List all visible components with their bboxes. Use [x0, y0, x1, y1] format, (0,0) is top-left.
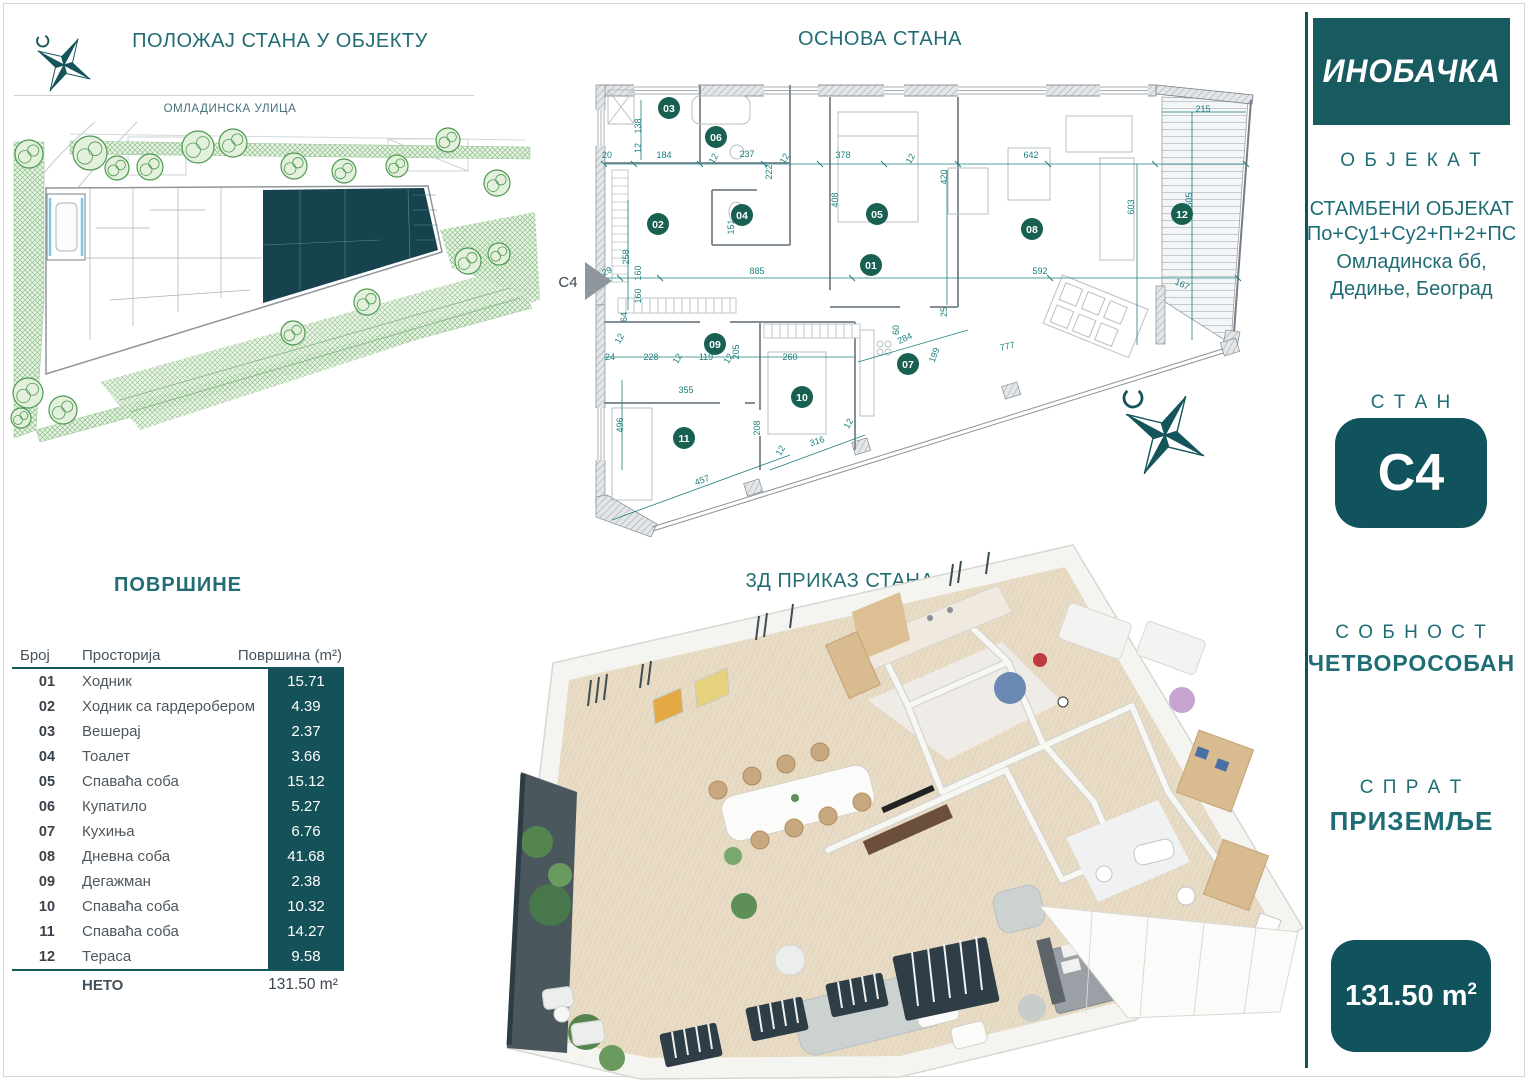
column-header-area: Површина (m²): [238, 647, 342, 664]
svg-text:228: 228: [643, 352, 658, 362]
svg-text:01: 01: [865, 260, 877, 272]
table-footer: НЕТО 131.50 m²: [12, 969, 344, 999]
unit-label: С Т А Н: [1313, 392, 1510, 414]
area-badge: 131.50 m2: [1331, 940, 1491, 1052]
address-line-2: Дедиње, Београд: [1305, 278, 1518, 301]
svg-text:592: 592: [1032, 266, 1047, 276]
table-row: 05Спаваћа соба15.12: [12, 769, 344, 794]
column-header-number: Број: [20, 647, 50, 664]
svg-text:24: 24: [605, 352, 615, 362]
svg-text:603: 603: [1126, 199, 1136, 214]
svg-text:420: 420: [939, 169, 949, 184]
brochure-page: ПОЛОЖАЈ СТАНА У ОБЈЕКТУ ОМЛАДИНСКА УЛИЦА: [0, 0, 1528, 1080]
svg-text:12: 12: [774, 444, 788, 458]
floor-plan-drawing: 1381220184122371237812642222408420603605…: [555, 55, 1275, 540]
object-label: О Б Ј Е К А Т: [1313, 150, 1510, 172]
table-header: Број Просторија Површина (m²): [12, 645, 344, 669]
svg-text:25: 25: [939, 307, 949, 317]
table-row: 06Купатило5.27: [12, 794, 344, 819]
table-row: 11Спаваћа соба14.27: [12, 919, 344, 944]
table-row: 10Спаваћа соба10.32: [12, 894, 344, 919]
svg-text:642: 642: [1023, 150, 1038, 160]
svg-text:60: 60: [891, 325, 901, 335]
site-plan-title: ПОЛОЖАЈ СТАНА У ОБЈЕКТУ: [60, 30, 500, 53]
sidebar-divider: [1305, 12, 1308, 1068]
company-logo: ИНОБАЧКА: [1313, 18, 1510, 125]
rooms-value: ЧЕТВОРОСОБАН: [1305, 650, 1518, 677]
svg-text:12: 12: [842, 417, 856, 431]
table-row: 12Тераса9.58: [12, 944, 344, 969]
net-value: 131.50 m²: [258, 976, 348, 994]
svg-text:12: 12: [613, 332, 627, 346]
object-floors: По+Су1+Су2+П+2+ПС: [1305, 223, 1518, 246]
svg-text:12: 12: [1176, 209, 1188, 221]
table-row: 08Дневна соба41.68: [12, 844, 344, 869]
company-logo-text: ИНОБАЧКА: [1322, 53, 1500, 90]
svg-text:885: 885: [749, 266, 764, 276]
divider-line: [14, 95, 474, 96]
table-row: 04Тоалет3.66: [12, 744, 344, 769]
svg-text:316: 316: [808, 434, 825, 448]
svg-text:496: 496: [615, 417, 625, 432]
areas-title: ПОВРШИНЕ: [12, 574, 344, 597]
plan-dimensions: 1381220184122371237812642222408420603605…: [600, 104, 1210, 487]
unit-badge: C4: [1335, 418, 1487, 528]
areas-section: ПОВРШИНЕ Број Просторија Површина (m²) 0…: [12, 574, 344, 999]
svg-text:05: 05: [871, 209, 883, 221]
svg-text:205: 205: [731, 344, 741, 359]
entrance-label: C4: [558, 274, 577, 291]
floor-label: С П Р А Т: [1313, 777, 1510, 799]
render-3d-image: [490, 535, 1310, 1080]
svg-text:378: 378: [835, 150, 850, 160]
svg-text:20: 20: [602, 150, 612, 160]
net-label: НЕТО: [82, 977, 258, 994]
svg-text:222: 222: [764, 164, 774, 179]
svg-text:237: 237: [739, 149, 754, 159]
svg-text:160: 160: [633, 288, 643, 303]
area-sup: 2: [1468, 979, 1477, 999]
plan-badges: 010203040506070809101112: [647, 97, 1193, 449]
svg-text:02: 02: [652, 219, 664, 231]
svg-text:11: 11: [678, 433, 689, 445]
svg-text:10: 10: [796, 392, 808, 404]
svg-text:12: 12: [671, 352, 685, 366]
site-plan-drawing: [0, 120, 545, 465]
svg-text:408: 408: [830, 192, 840, 207]
svg-text:260: 260: [782, 352, 797, 362]
table-row: 09Дегажман2.38: [12, 869, 344, 894]
sidebar: ИНОБАЧКА О Б Ј Е К А Т СТАМБЕНИ ОБЈЕКАТ …: [1305, 0, 1524, 1080]
rooms-label: С О Б Н О С Т: [1313, 622, 1510, 644]
svg-text:355: 355: [678, 385, 693, 395]
floor-plan-title: ОСНОВА СТАНА: [700, 28, 1060, 51]
plan-compass-icon: [1105, 375, 1224, 494]
svg-text:215: 215: [1195, 104, 1210, 114]
svg-text:64: 64: [619, 312, 629, 322]
column-header-room: Просторија: [82, 647, 160, 664]
svg-text:03: 03: [663, 103, 675, 115]
floor-value: ПРИЗЕМЉЕ: [1305, 806, 1518, 837]
table-row: 07Кухиња6.76: [12, 819, 344, 844]
svg-text:04: 04: [736, 210, 748, 222]
svg-text:08: 08: [1026, 224, 1038, 236]
plan-walls: [595, 84, 1253, 537]
svg-text:258: 258: [621, 249, 631, 264]
svg-text:208: 208: [752, 420, 762, 435]
svg-text:12: 12: [904, 152, 918, 166]
table-row: 03Вешерај2.37: [12, 719, 344, 744]
areas-table-rows: 01Ходник15.7102Ходник са гардеробером4.3…: [12, 669, 344, 969]
svg-text:777: 777: [999, 340, 1016, 353]
site-unit-highlight: [263, 188, 438, 303]
table-row: 01Ходник15.71: [12, 669, 344, 694]
svg-text:138: 138: [633, 118, 643, 133]
svg-text:07: 07: [902, 359, 914, 371]
unit-value: C4: [1378, 443, 1444, 503]
svg-text:12: 12: [633, 143, 643, 153]
table-row: 02Ходник са гардеробером4.39: [12, 694, 344, 719]
svg-text:06: 06: [710, 132, 722, 144]
svg-text:160: 160: [633, 265, 643, 280]
area-value: 131.50 m: [1345, 980, 1468, 1013]
street-label: ОМЛАДИНСКА УЛИЦА: [120, 103, 340, 115]
address-line-1: Омладинска бб,: [1305, 251, 1518, 274]
svg-text:09: 09: [709, 339, 721, 351]
svg-text:184: 184: [656, 150, 671, 160]
object-type: СТАМБЕНИ ОБЈЕКАТ: [1305, 198, 1518, 221]
svg-text:199: 199: [927, 346, 942, 364]
